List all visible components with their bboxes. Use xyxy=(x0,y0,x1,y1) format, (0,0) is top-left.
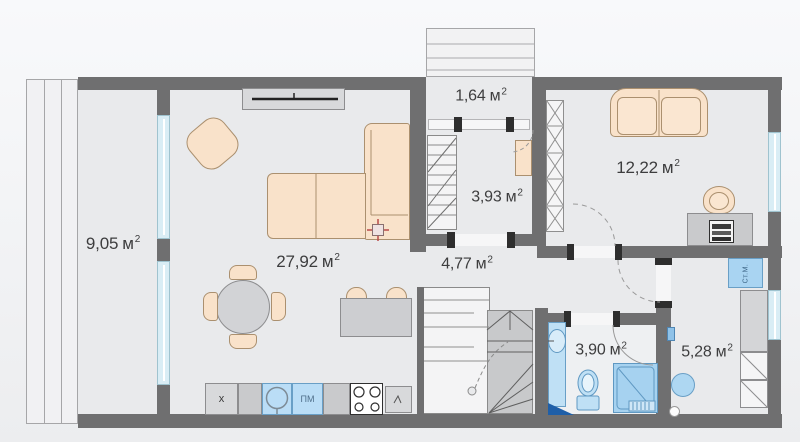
door-opening-bathroom xyxy=(571,313,614,325)
stove xyxy=(350,383,383,415)
boiler xyxy=(671,373,695,397)
water-valve xyxy=(667,327,675,341)
floor-drain xyxy=(669,406,680,417)
sofa-chaise xyxy=(364,123,410,240)
bath-counter xyxy=(548,322,566,407)
door-opening-bedroom xyxy=(574,246,616,258)
kitchen-sink xyxy=(262,383,292,415)
balcony-door-wall xyxy=(428,119,530,130)
wall xyxy=(417,287,424,414)
wall xyxy=(157,77,170,115)
terrace-railing xyxy=(61,79,78,424)
closet xyxy=(740,290,768,352)
kitchen-cabinet: x xyxy=(205,383,238,415)
door-post xyxy=(454,117,462,132)
window xyxy=(768,290,781,340)
entrance-porch xyxy=(426,28,535,77)
dishwasher: ПМ xyxy=(292,383,323,415)
room-area-balcony: 1,64м2 xyxy=(455,86,507,105)
floor-outlet xyxy=(372,224,384,236)
door-post xyxy=(447,232,455,248)
kitchen-counter xyxy=(238,383,262,415)
wall xyxy=(157,239,170,261)
door-post xyxy=(655,301,672,308)
room-area-bathroom: 3,90м2 xyxy=(575,340,627,359)
terrace-railing xyxy=(26,79,45,424)
window xyxy=(768,132,781,212)
door-post xyxy=(615,244,622,260)
door-post xyxy=(613,311,620,327)
dishwasher-label: ПМ xyxy=(293,384,322,414)
shower-cabin xyxy=(613,363,658,413)
window xyxy=(157,261,170,385)
dining-chair xyxy=(229,334,257,349)
door-opening-entry xyxy=(454,234,508,246)
dining-chair xyxy=(271,292,286,321)
room-area-utility: 5,28м2 xyxy=(681,342,733,361)
kitchen-cabinet-label: x xyxy=(206,384,237,414)
closet-cell xyxy=(740,380,768,408)
wall xyxy=(532,77,546,246)
room-area-terrace: 9,05м2 xyxy=(86,234,140,254)
room-area-entry: 3,93м2 xyxy=(471,187,523,206)
door-post xyxy=(567,244,574,260)
door-opening-utility xyxy=(656,265,671,302)
kitchen-counter xyxy=(323,383,350,415)
bed-cushion xyxy=(661,97,701,135)
desk-computer xyxy=(709,220,734,243)
bed-cushion xyxy=(617,97,657,135)
sofa xyxy=(267,173,366,239)
door-post xyxy=(655,258,672,265)
washing-machine: Ст.М. xyxy=(728,258,763,288)
closet-cell xyxy=(740,352,768,380)
room-area-living-kitchen: 27,92м2 xyxy=(276,252,339,272)
window xyxy=(157,115,170,239)
floor-plan: x ПМ Ст.М. xyxy=(0,0,800,442)
wall xyxy=(535,308,548,414)
bath-mat xyxy=(548,403,574,415)
room-area-bedroom: 12,22м2 xyxy=(616,158,679,178)
wall xyxy=(157,385,170,414)
door-post xyxy=(506,117,514,132)
door-post xyxy=(507,232,515,248)
dining-chair xyxy=(229,265,257,280)
bar-counter xyxy=(340,298,412,337)
shelf xyxy=(515,140,532,176)
desk-chair-seat xyxy=(709,192,729,210)
wall xyxy=(410,77,426,252)
dining-table xyxy=(216,280,270,334)
kitchen-cabinet-small xyxy=(385,386,412,413)
room-area-hallway: 4,77м2 xyxy=(441,254,493,273)
stair-winder xyxy=(487,310,533,414)
stair-flight xyxy=(423,287,490,414)
terrace-railing xyxy=(44,79,62,424)
dining-chair xyxy=(203,292,218,321)
washing-machine-label: Ст.М. xyxy=(729,259,762,287)
tv-stand xyxy=(242,88,345,110)
